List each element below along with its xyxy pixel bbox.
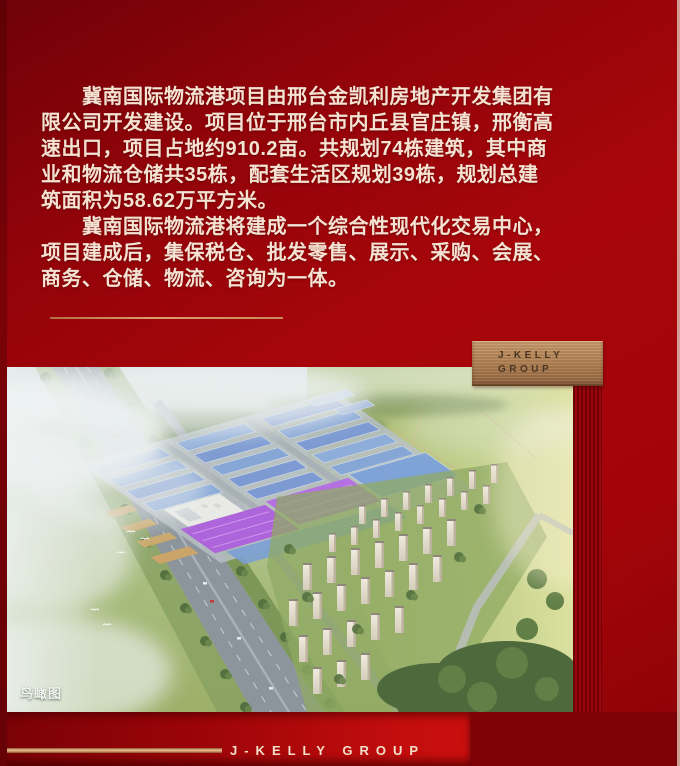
aerial-rendering-image[interactable]: 鸟瞰图 (7, 367, 573, 712)
left-edge-strip (0, 0, 7, 766)
gold-divider (50, 317, 283, 319)
footer-brand-text: J-KELLY GROUP (230, 743, 425, 758)
jkelly-group-logo-badge: J-KELLY GROUP (472, 341, 603, 386)
footer-right-panel (471, 712, 680, 766)
intro-line: 冀南国际物流港项目由邢台金凯利房地产开发集团有 (41, 84, 523, 110)
striped-accent (573, 386, 602, 712)
footer-gold-rule (2, 748, 222, 753)
intro-text-block: 冀南国际物流港项目由邢台金凯利房地产开发集团有 限公司开发建设。项目位于邢台市内… (41, 84, 523, 292)
intro-line: 冀南国际物流港将建成一个综合性现代化交易中心， (41, 214, 523, 240)
promo-page: 冀南国际物流港项目由邢台金凯利房地产开发集团有 限公司开发建设。项目位于邢台市内… (0, 0, 680, 766)
intro-line: 项目建成后，集保税仓、批发零售、展示、采购、会展、 (41, 240, 523, 266)
aerial-view-caption: 鸟瞰图 (20, 683, 62, 702)
intro-line: 速出口，项目占地约910.2亩。共规划74栋建筑，其中商 (41, 136, 523, 162)
footer: J-KELLY GROUP (0, 712, 680, 766)
logo-line-2: GROUP (498, 363, 603, 377)
intro-line: 业和物流仓储共35栋，配套生活区规划39栋，规划总建 (41, 162, 523, 188)
intro-line: 筑面积为58.62万平方米。 (41, 188, 523, 214)
logo-line-1: J-KELLY (498, 349, 603, 363)
intro-line: 限公司开发建设。项目位于邢台市内丘县官庄镇，邢衡高 (41, 110, 523, 136)
intro-line: 商务、仓储、物流、咨询为一体。 (41, 266, 523, 292)
